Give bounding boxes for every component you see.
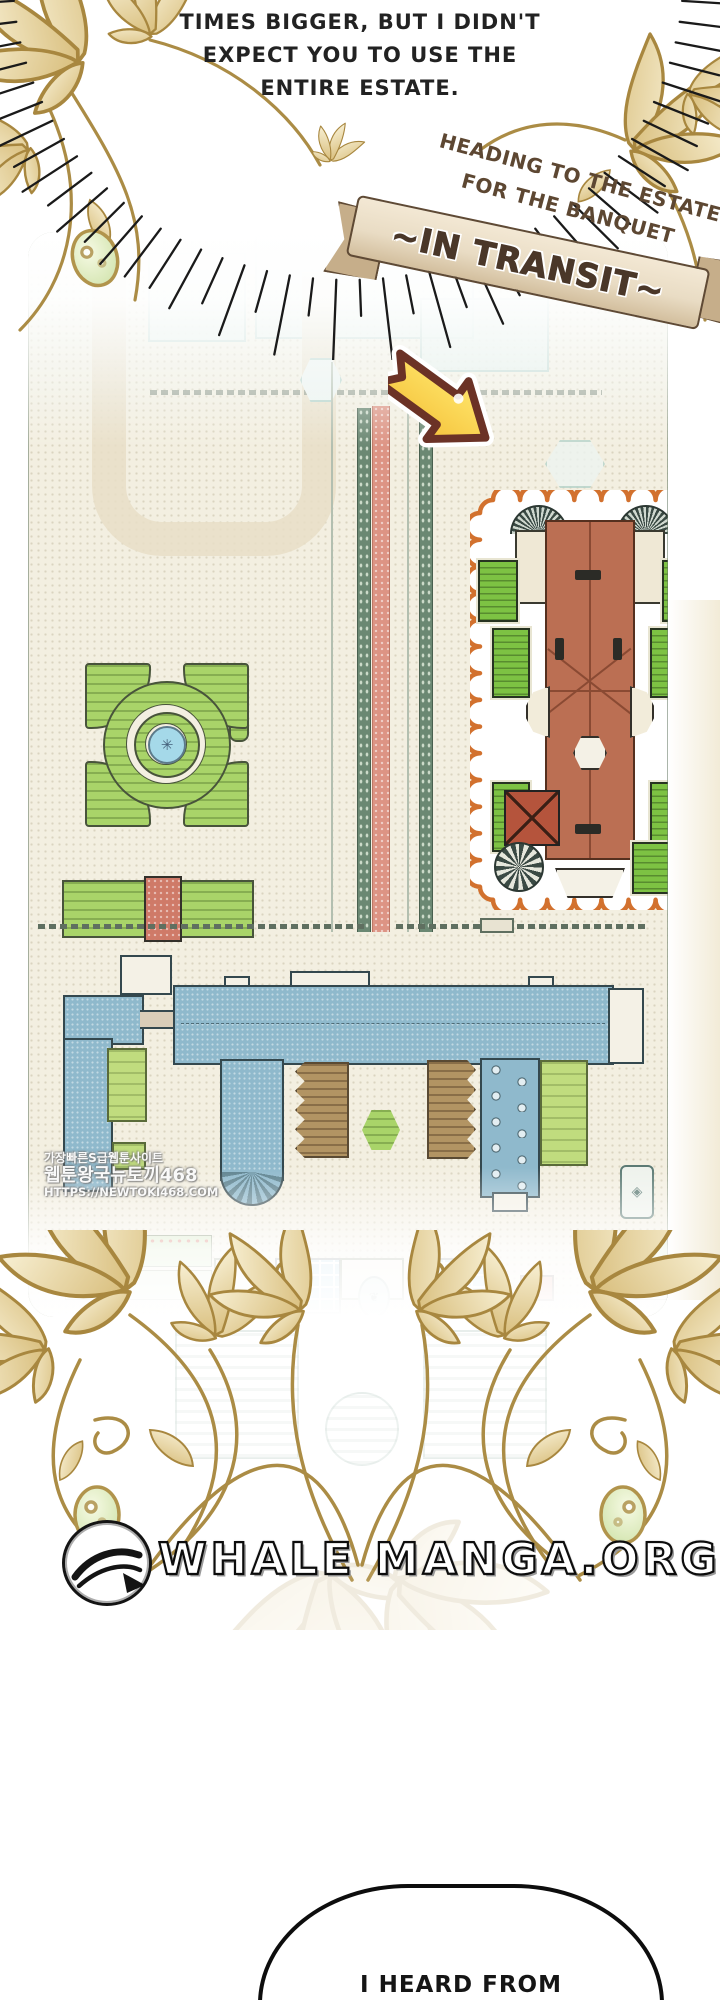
map-paper-edge — [668, 600, 720, 1300]
manga-page: ✳ — [0, 0, 720, 2000]
whale-logo-icon — [62, 1520, 152, 1606]
lily-bottom-center-right — [362, 1230, 580, 1580]
watermark-line-1: 가장빠른S급웹툰사이트 — [44, 1152, 218, 1166]
site-name: WHALE MANGA.ORG — [158, 1534, 720, 1585]
direction-arrow-icon — [388, 326, 533, 461]
speech-top-line-1: TIMES BIGGER, BUT I DIDN'T — [80, 6, 640, 39]
speech-bubble-top: TIMES BIGGER, BUT I DIDN'T EXPECT YOU TO… — [80, 6, 640, 105]
lily-bottom-right — [431, 1230, 720, 1575]
speech-top-line-3: ENTIRE ESTATE. — [80, 72, 640, 105]
lily-bottom-center-left — [140, 1230, 358, 1580]
speech-bottom-line-1: I HEARD FROM — [262, 1972, 660, 1998]
speech-top-line-2: EXPECT YOU TO USE THE — [80, 39, 640, 72]
watermark-url: HTTPS://NEWTOKI468.COM — [44, 1186, 218, 1199]
speech-bubble-bottom: I HEARD FROM — [258, 1884, 664, 2000]
site-watermark: 가장빠른S급웹툰사이트 웹툰왕국뉴토끼468 HTTPS://NEWTOKI46… — [44, 1152, 218, 1200]
watermark-line-2: 웹툰왕국뉴토끼468 — [44, 1166, 218, 1187]
